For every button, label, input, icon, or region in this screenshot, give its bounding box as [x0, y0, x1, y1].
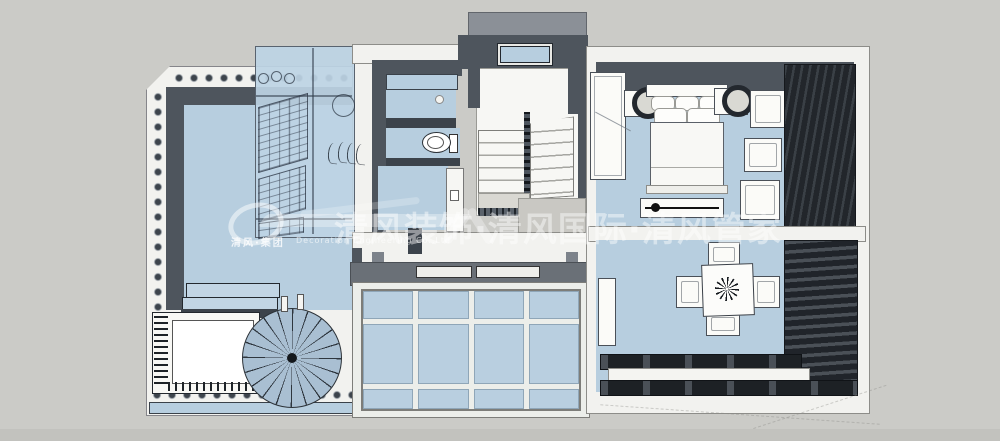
glass-panel — [474, 291, 524, 319]
armchair-detail — [745, 185, 775, 215]
tv-cabinet-knob — [651, 203, 660, 212]
bathroom-door-latch — [450, 190, 459, 201]
tv-cabinet — [640, 198, 724, 218]
spiral-post-2 — [297, 294, 304, 310]
bathroom-lower-floor — [378, 166, 448, 230]
armchair-middle — [744, 138, 782, 172]
armchair-detail — [755, 95, 781, 123]
chair-detail — [713, 247, 735, 262]
spiral-staircase — [242, 308, 342, 408]
stairwell-wall-left-col — [468, 64, 480, 108]
glass-panel — [418, 324, 468, 384]
dining-chair-right — [752, 276, 780, 308]
terrace-edge-strip — [149, 402, 361, 414]
stair-flight-right — [530, 116, 574, 199]
spiral-post-1 — [281, 296, 288, 312]
bathroom-wall-mid — [386, 158, 460, 166]
cloakroom-door-arc-1 — [258, 73, 269, 84]
cloakroom-door-arc-3 — [284, 73, 295, 84]
glass-panel — [363, 291, 413, 319]
bed-foot-board — [646, 185, 728, 194]
bedroom-curtains — [784, 64, 856, 228]
glass-panel — [529, 389, 579, 409]
terrace-step-1 — [186, 283, 280, 298]
glass-panel — [363, 324, 413, 384]
sunroom-sill-1 — [416, 266, 472, 278]
skylight-glass-grid — [361, 289, 581, 411]
sunroom-sill-2 — [476, 266, 540, 278]
stair-flight-left — [478, 130, 528, 196]
bottom-shade-band — [0, 429, 1000, 441]
wardrobe-inner-line — [594, 76, 622, 176]
glass-panel — [418, 389, 468, 409]
armchair-detail — [749, 143, 777, 167]
glass-panel — [363, 389, 413, 409]
chair-detail — [711, 317, 735, 331]
shower-light-dot — [435, 95, 444, 104]
shower-floor — [386, 90, 456, 118]
floorplan-render: 清风·集团 Decoration Engineering Co.,Ltd 清风装… — [0, 0, 1000, 441]
glass-panel — [418, 291, 468, 319]
bathroom-partition — [386, 118, 456, 128]
armchair-bottom — [740, 180, 780, 220]
glass-panel — [474, 389, 524, 409]
double-bed-mattress — [650, 122, 724, 188]
dining-chair-left — [676, 276, 704, 308]
glass-panel — [529, 324, 579, 384]
table-centerpiece-icon — [715, 277, 739, 301]
armchair-top — [750, 90, 786, 128]
corridor-door-block — [408, 228, 422, 254]
stairwell-wall-right-col — [568, 62, 588, 114]
cloakroom-divider-v — [312, 48, 314, 234]
chair-detail — [681, 281, 699, 303]
wardrobe — [590, 72, 626, 180]
bathroom-shelf-strip — [386, 74, 458, 90]
toilet-seat — [427, 136, 444, 149]
dining-niche — [598, 278, 616, 346]
glass-panel — [474, 324, 524, 384]
planter-hatch-left — [154, 316, 168, 388]
chair-detail — [757, 281, 775, 303]
bed-fold-line — [651, 167, 723, 168]
glass-panel — [529, 291, 579, 319]
stairwell-window — [500, 46, 550, 63]
dining-slat-strip-lower — [600, 380, 858, 396]
spiral-staircase-hub — [287, 353, 297, 363]
cloakroom-stool-circle — [332, 94, 355, 117]
terrace-wall-left — [166, 87, 184, 310]
cloakroom-door-arc-2 — [271, 71, 282, 82]
